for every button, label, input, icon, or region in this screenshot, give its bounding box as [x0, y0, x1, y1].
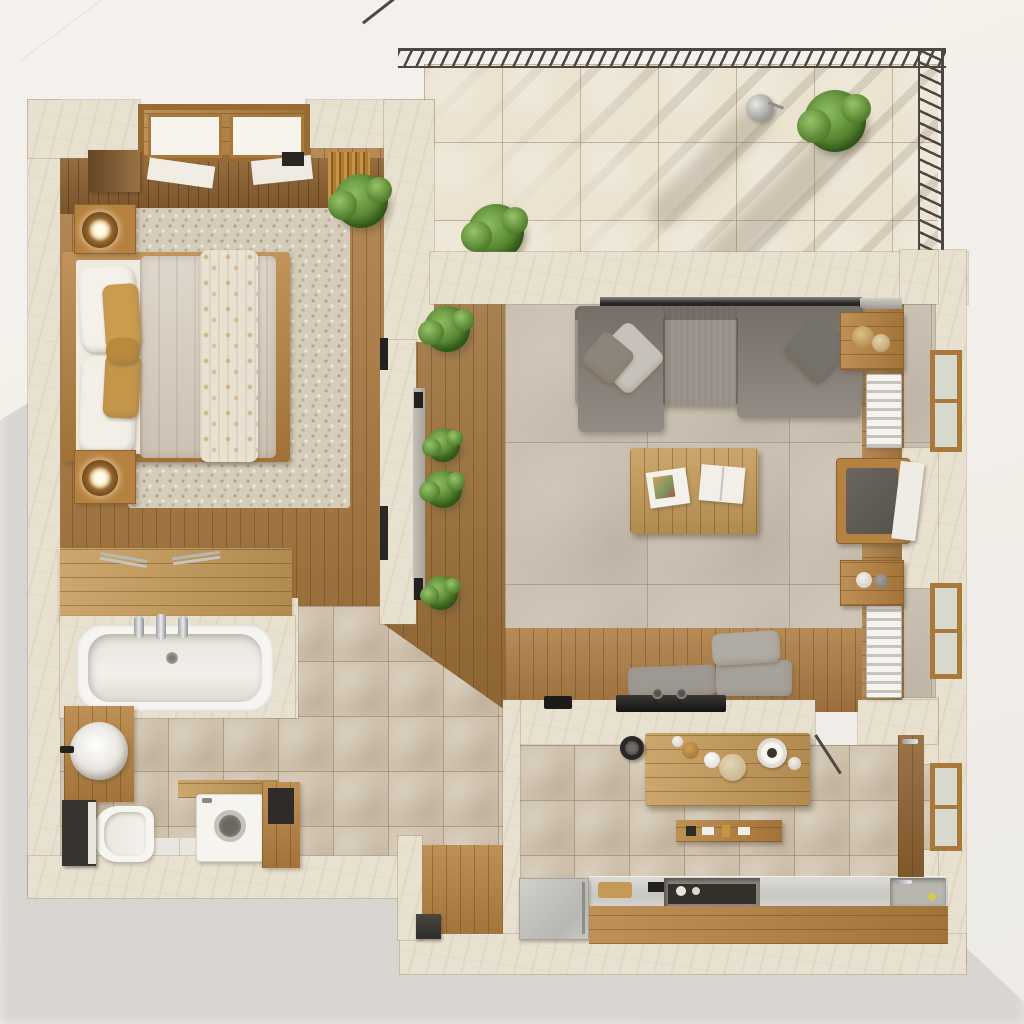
bench-cushion — [716, 660, 792, 696]
door-track-handle — [380, 338, 388, 370]
round-platter — [719, 754, 746, 781]
washer-controls — [202, 798, 212, 803]
bench-cushion — [628, 664, 717, 697]
toilet-seat — [104, 812, 146, 856]
table-lamp — [82, 460, 118, 496]
fold-line — [20, 0, 181, 62]
tub-tap-chrome — [134, 616, 144, 638]
small-side-table — [840, 560, 904, 606]
washer-door-ring — [214, 810, 246, 842]
magazine-cover-art — [653, 475, 676, 500]
fridge — [519, 878, 589, 940]
fridge-handle — [582, 882, 585, 934]
tv-console — [616, 695, 726, 712]
cup — [672, 736, 683, 747]
cabinet-open-inset — [268, 788, 294, 824]
wall-kitchen-left — [503, 700, 520, 940]
dish-stack — [692, 887, 700, 895]
balcony-railing-top — [398, 48, 946, 68]
radiator — [866, 374, 902, 448]
wardrobe — [88, 150, 140, 192]
table-lamp — [82, 212, 118, 248]
bowl — [704, 752, 720, 768]
cup — [856, 572, 872, 588]
patterned-throw — [200, 250, 258, 462]
potted-plant — [424, 306, 470, 352]
bed-bolster-gold — [106, 338, 140, 364]
wall-mounted-item — [282, 152, 304, 166]
entry-storage-box — [416, 914, 441, 939]
pantry-door — [898, 735, 924, 877]
speaker — [652, 688, 663, 699]
door-track-handle — [380, 506, 388, 560]
counter-item-black — [648, 882, 664, 892]
balcony-railing-right — [918, 50, 944, 258]
wall-bedroom-right — [384, 100, 434, 342]
tub-tap-chrome — [178, 616, 188, 638]
side-table-decor — [872, 334, 890, 352]
vase — [788, 757, 801, 770]
bench-back-pillow — [711, 630, 781, 667]
soundbar — [544, 696, 572, 709]
door-track-silver — [860, 298, 902, 309]
potted-plant — [424, 576, 458, 610]
wood-bowl — [682, 742, 699, 759]
window — [930, 350, 962, 452]
pantry-handle — [902, 739, 918, 744]
potted-plant — [426, 428, 460, 462]
pergola-skylight — [148, 114, 222, 158]
potted-plant — [424, 470, 462, 508]
cabinet-fronts — [589, 906, 948, 944]
floating-shelf — [676, 820, 782, 842]
cup — [874, 574, 888, 588]
sink-faucet — [896, 880, 912, 884]
kitchen-window — [930, 763, 962, 851]
shelf-item — [722, 825, 730, 837]
lemon — [928, 893, 936, 901]
shelf-item — [738, 827, 750, 835]
cooktop-recess — [664, 878, 760, 908]
armchair-cushion — [846, 468, 898, 534]
basin-faucet — [60, 746, 74, 753]
plate-food — [767, 748, 777, 758]
wall-hallway — [380, 340, 416, 624]
side-table-decor — [852, 326, 874, 348]
bathtub-drain — [166, 652, 178, 664]
hanging-plant — [334, 174, 388, 228]
wall-left — [28, 100, 60, 896]
shelf-item — [702, 827, 714, 835]
potted-plant — [804, 90, 866, 152]
watering-can — [746, 94, 774, 122]
cutting-board — [598, 882, 632, 898]
pendant-lamp — [620, 736, 644, 760]
speaker — [676, 688, 687, 699]
shelf-item — [686, 826, 696, 836]
wall-right-block — [900, 250, 938, 304]
bathtub-basin — [88, 634, 262, 702]
floor-plan-render — [0, 0, 1024, 1024]
dish-stack — [676, 886, 686, 896]
sofa-seam — [736, 318, 738, 404]
sofa-seam — [663, 318, 665, 404]
tub-tap-chrome — [156, 614, 166, 640]
round-basin — [70, 722, 128, 780]
cabinet-white-edge — [88, 802, 96, 864]
window — [930, 583, 962, 679]
railing-corner-brace — [362, 0, 405, 24]
sliding-door-handle — [414, 392, 423, 408]
